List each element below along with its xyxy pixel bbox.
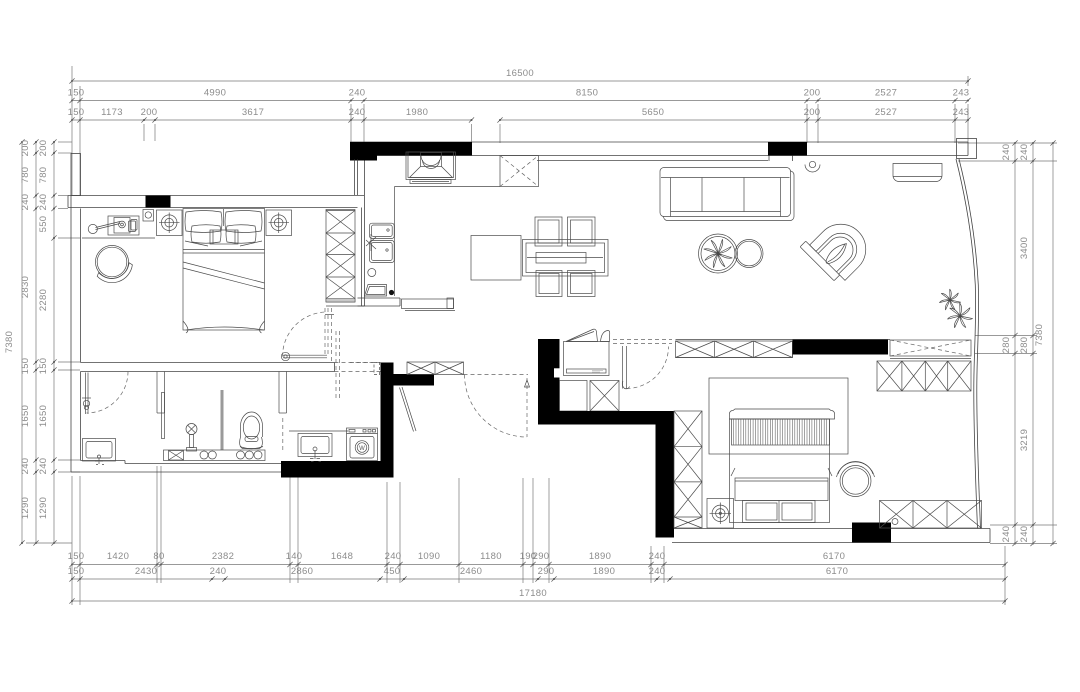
svg-text:3617: 3617: [242, 107, 264, 118]
svg-text:150: 150: [38, 358, 49, 375]
svg-text:7380: 7380: [1034, 324, 1045, 346]
svg-text:240: 240: [210, 566, 227, 577]
svg-text:1090: 1090: [418, 551, 440, 562]
svg-text:2430: 2430: [135, 566, 157, 577]
svg-text:240: 240: [20, 194, 31, 211]
svg-text:450: 450: [384, 566, 401, 577]
svg-text:240: 240: [1001, 144, 1012, 161]
svg-text:780: 780: [38, 167, 49, 184]
svg-text:2527: 2527: [875, 88, 897, 99]
svg-text:80: 80: [153, 551, 164, 562]
svg-text:8150: 8150: [576, 88, 598, 99]
svg-text:200: 200: [38, 140, 49, 157]
svg-text:150: 150: [20, 358, 31, 375]
svg-text:4990: 4990: [204, 88, 226, 99]
svg-text:6170: 6170: [823, 551, 845, 562]
svg-text:780: 780: [20, 167, 31, 184]
svg-text:3400: 3400: [1019, 237, 1030, 259]
svg-text:200: 200: [141, 107, 158, 118]
svg-text:1650: 1650: [20, 405, 31, 427]
svg-text:243: 243: [953, 88, 970, 99]
svg-text:240: 240: [20, 458, 31, 475]
svg-text:1890: 1890: [593, 566, 615, 577]
svg-text:1290: 1290: [20, 497, 31, 519]
svg-text:240: 240: [1001, 526, 1012, 543]
svg-text:1420: 1420: [107, 551, 129, 562]
svg-text:7380: 7380: [4, 331, 15, 353]
svg-text:290: 290: [538, 566, 555, 577]
svg-text:1980: 1980: [406, 107, 428, 118]
svg-text:5650: 5650: [642, 107, 664, 118]
svg-text:140: 140: [286, 551, 303, 562]
svg-text:280: 280: [1001, 337, 1012, 354]
svg-text:2527: 2527: [875, 107, 897, 118]
svg-text:200: 200: [20, 140, 31, 157]
svg-text:240: 240: [1019, 144, 1030, 161]
svg-text:1648: 1648: [331, 551, 353, 562]
svg-text:290: 290: [533, 551, 550, 562]
svg-text:16500: 16500: [506, 68, 534, 79]
svg-text:17180: 17180: [519, 588, 547, 599]
svg-text:W: W: [359, 446, 365, 452]
svg-text:240: 240: [349, 88, 366, 99]
svg-text:2460: 2460: [460, 566, 482, 577]
svg-text:280: 280: [1019, 337, 1030, 354]
svg-text:240: 240: [38, 194, 49, 211]
svg-text:1173: 1173: [101, 107, 123, 118]
svg-text:150: 150: [68, 566, 85, 577]
svg-text:3219: 3219: [1019, 429, 1030, 451]
svg-text:150: 150: [68, 107, 85, 118]
svg-text:2830: 2830: [20, 276, 31, 298]
svg-text:2280: 2280: [38, 289, 49, 311]
svg-text:150: 150: [68, 88, 85, 99]
svg-text:1180: 1180: [480, 551, 502, 562]
svg-text:2860: 2860: [291, 566, 313, 577]
svg-text:1290: 1290: [38, 497, 49, 519]
svg-text:1650: 1650: [38, 405, 49, 427]
svg-text:150: 150: [68, 551, 85, 562]
svg-text:240: 240: [1019, 526, 1030, 543]
svg-text:1890: 1890: [589, 551, 611, 562]
svg-text:2382: 2382: [212, 551, 234, 562]
svg-text:6170: 6170: [826, 566, 848, 577]
svg-text:240: 240: [38, 458, 49, 475]
svg-text:550: 550: [38, 216, 49, 233]
svg-text:200: 200: [804, 88, 821, 99]
